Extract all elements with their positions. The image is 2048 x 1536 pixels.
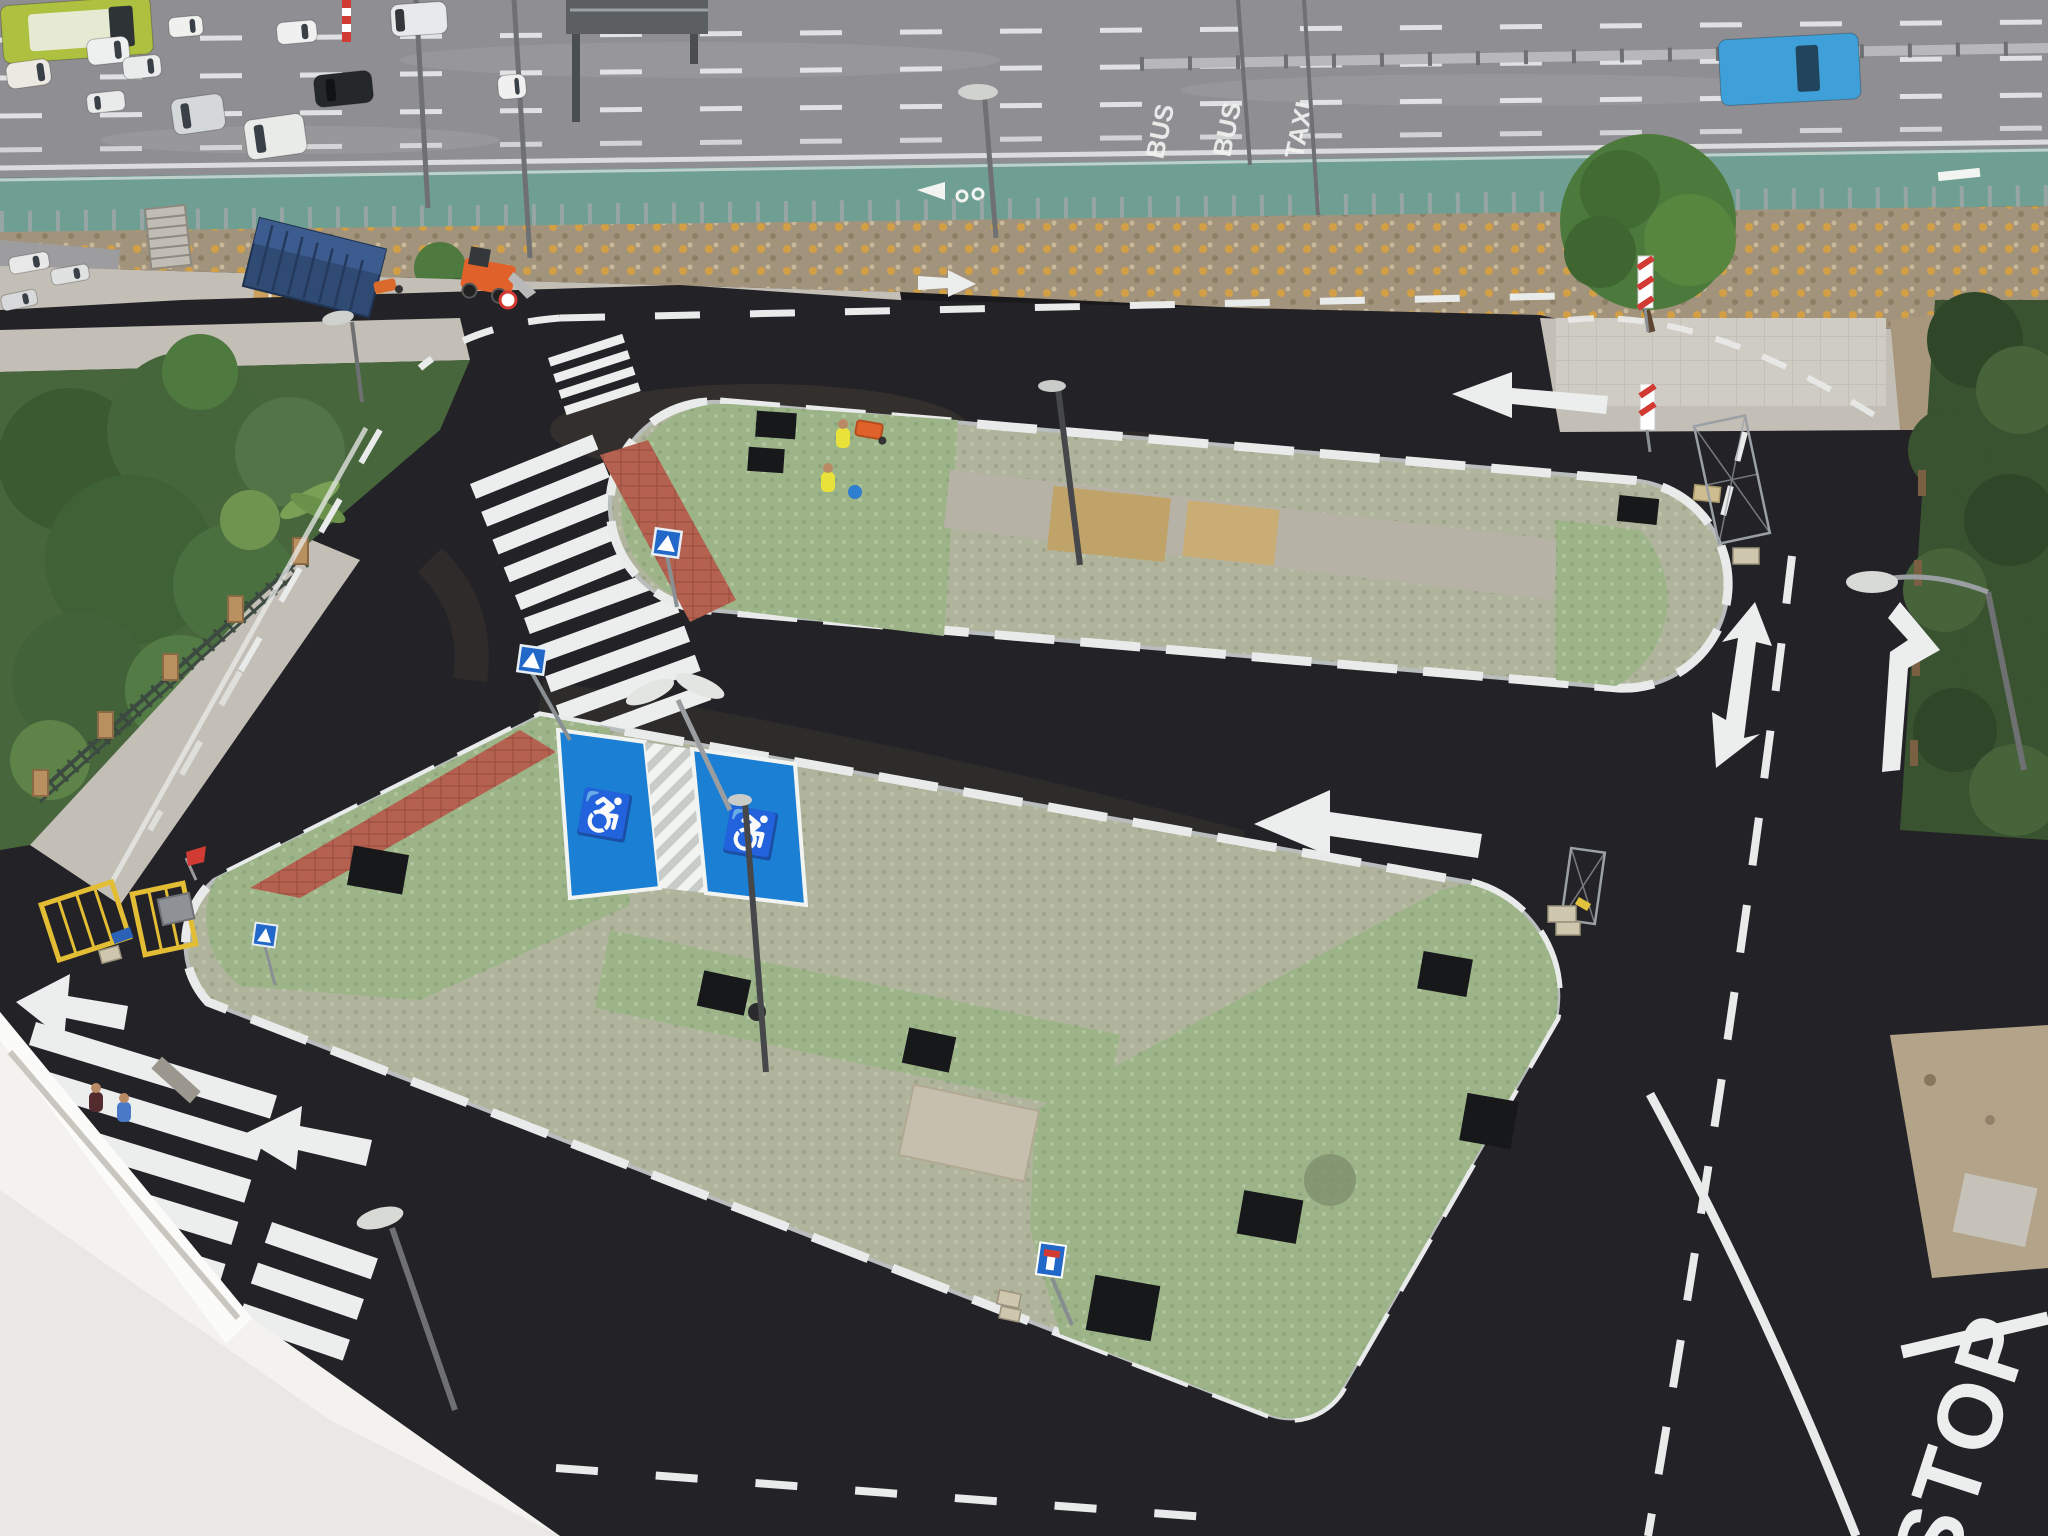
debris	[1924, 1074, 1936, 1086]
lamp-head	[1038, 380, 1066, 392]
right-hedge	[1890, 292, 2048, 1278]
vehicle-bus-green	[0, 0, 154, 64]
garden-bush	[10, 720, 90, 800]
pole-stripe	[342, 24, 351, 32]
debris	[1985, 1115, 1995, 1125]
fence-base-block	[1556, 922, 1580, 935]
person-pedestrian-1	[89, 1083, 103, 1112]
wooden-post	[1910, 740, 1918, 766]
vehicle-van-white-yellow-stripe	[5, 58, 52, 90]
vehicle-car-white-4	[122, 54, 162, 80]
canopy-shade	[1564, 216, 1636, 288]
fence-base-block	[1548, 906, 1576, 922]
wheelchair-icon: ♿	[573, 786, 636, 845]
tree-pit	[755, 411, 797, 440]
pole-stripe	[342, 8, 351, 16]
tree-pit	[1459, 1093, 1519, 1149]
lamp-head	[958, 84, 998, 100]
no-entry-sign	[500, 292, 516, 308]
wooden-post	[1918, 470, 1926, 496]
green-blob	[1304, 1154, 1356, 1206]
garden-bush	[162, 334, 238, 410]
vehicle-car-white-6	[497, 74, 527, 100]
wooden-post	[1914, 560, 1922, 586]
overhead-gantry	[566, 0, 708, 34]
vehicle-car-white-3	[276, 20, 318, 45]
utility-cabinet	[158, 893, 195, 925]
stairs	[145, 205, 191, 269]
red-white-pole	[342, 0, 351, 42]
vehicle-truck-white	[390, 1, 448, 37]
aerial-photo: BUS BUS TAXI	[0, 0, 2048, 1536]
tree-pit	[747, 447, 785, 473]
tan-panel	[1047, 486, 1171, 562]
tree-pit	[1617, 495, 1659, 525]
person-pedestrian-2	[117, 1093, 131, 1122]
person-worker-hivis-2	[821, 463, 835, 492]
gantry-leg	[690, 34, 698, 64]
tan-panel	[1182, 500, 1279, 565]
garden-bush	[220, 490, 280, 550]
person-worker-hivis-1	[836, 419, 850, 448]
canopy-light	[1644, 194, 1736, 286]
vehicle-car-white-2	[168, 15, 204, 38]
vehicle-suv-black	[313, 70, 374, 108]
vehicle-car-white-5	[86, 90, 126, 114]
vehicle-car-blue-hatchback	[1718, 33, 1861, 106]
scene-canvas: BUS BUS TAXI	[0, 0, 2048, 1536]
vehicle-kombi-white	[243, 113, 308, 161]
blue-bucket	[848, 485, 862, 499]
fence-base-block	[1733, 548, 1759, 564]
tree-pit	[1086, 1275, 1161, 1342]
vehicle-van-silver	[170, 93, 227, 136]
gantry-leg	[572, 34, 580, 122]
paver-grid	[1556, 318, 1886, 406]
